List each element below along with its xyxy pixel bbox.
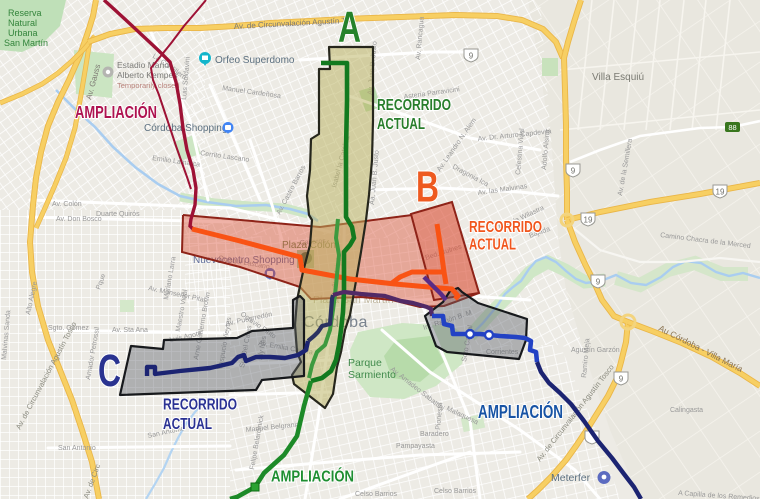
svg-text:Parque: Parque [348,357,382,369]
svg-text:Meterfer: Meterfer [551,472,591,484]
svg-text:RECORRIDO: RECORRIDO [377,97,451,114]
svg-text:Pampayasta: Pampayasta [396,443,435,450]
svg-text:Av. Don Bosco: Av. Don Bosco [56,216,102,223]
svg-text:RECORRIDO: RECORRIDO [469,219,542,236]
svg-text:A: A [338,3,361,52]
svg-text:9: 9 [596,278,601,287]
svg-text:Temporarily closed: Temporarily closed [117,81,180,90]
svg-text:Av. Colón: Av. Colón [52,201,82,208]
svg-text:C: C [98,345,121,396]
svg-text:AMPLIACIÓN: AMPLIACIÓN [478,401,563,422]
svg-text:88: 88 [728,123,736,132]
svg-text:San Martín: San Martín [4,38,48,48]
svg-text:ACTUAL: ACTUAL [163,416,212,433]
svg-text:Urbana: Urbana [8,28,38,38]
svg-text:ACTUAL: ACTUAL [469,237,516,254]
svg-text:RECORRIDO: RECORRIDO [163,397,237,414]
svg-text:AMPLIACIÓN: AMPLIACIÓN [75,101,157,122]
svg-text:San Antonio: San Antonio [58,445,96,452]
svg-text:Calingasta: Calingasta [670,407,703,414]
svg-text:19: 19 [584,216,593,225]
svg-text:Duarte Quirós: Duarte Quirós [96,211,140,218]
svg-text:Estadio Mario: Estadio Mario [117,60,169,70]
svg-text:9: 9 [571,167,576,176]
svg-text:Agustín Garzón: Agustín Garzón [571,347,620,354]
svg-text:Baradero: Baradero [420,431,449,438]
svg-text:Reserva: Reserva [8,8,42,18]
svg-text:19: 19 [716,188,725,197]
svg-text:9: 9 [469,52,474,61]
svg-text:Orfeo Superdomo: Orfeo Superdomo [215,55,295,66]
svg-text:AMPLIACIÓN: AMPLIACIÓN [271,467,354,486]
svg-text:Villa Esquiú: Villa Esquiú [592,72,644,83]
svg-text:Sarmiento: Sarmiento [348,369,396,381]
svg-text:Av. Sta Ana: Av. Sta Ana [112,327,148,334]
svg-text:Alberto Kempes: Alberto Kempes [117,70,177,80]
svg-text:Natural: Natural [8,18,37,28]
svg-text:Celso Barrios: Celso Barrios [434,488,477,495]
svg-text:ACTUAL: ACTUAL [377,116,425,133]
svg-text:B: B [416,163,439,212]
svg-text:9: 9 [619,375,624,384]
svg-text:Córdoba Shopping: Córdoba Shopping [144,123,227,134]
svg-text:Celso Barrios: Celso Barrios [355,491,398,498]
